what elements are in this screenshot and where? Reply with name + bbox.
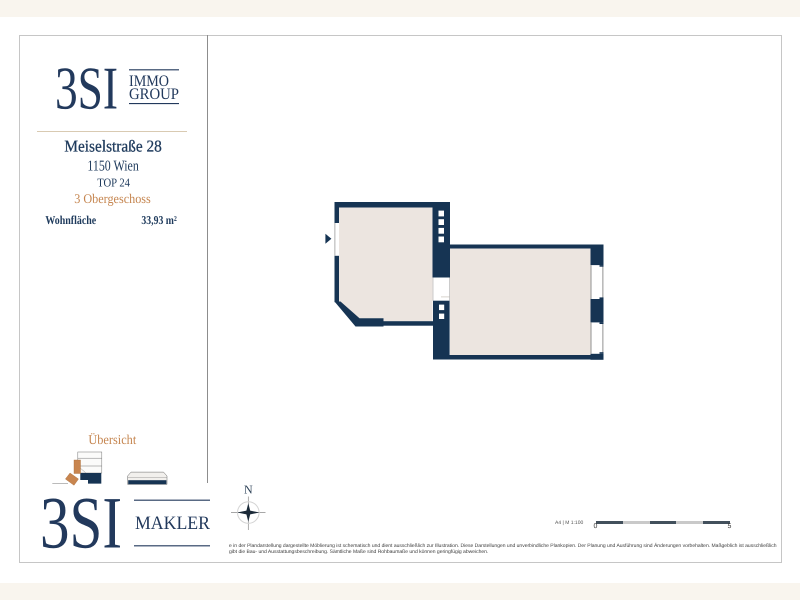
- svg-text:Wohnfläche: Wohnfläche: [45, 213, 96, 227]
- svg-text:3SI: 3SI: [40, 490, 122, 552]
- svg-text:GROUP: GROUP: [129, 86, 179, 103]
- svg-text:33,93 m²: 33,93 m²: [141, 213, 177, 227]
- svg-text:3SI: 3SI: [55, 55, 118, 115]
- svg-text:MAKLER: MAKLER: [135, 513, 210, 534]
- svg-text:N: N: [244, 483, 253, 497]
- svg-text:Übersicht: Übersicht: [88, 432, 136, 447]
- svg-text:TOP 24: TOP 24: [97, 176, 130, 190]
- svg-text:3 Obergeschoss: 3 Obergeschoss: [74, 191, 151, 206]
- svg-text:1150 Wien: 1150 Wien: [87, 158, 139, 174]
- svg-text:Meiselstraße 28: Meiselstraße 28: [64, 137, 161, 156]
